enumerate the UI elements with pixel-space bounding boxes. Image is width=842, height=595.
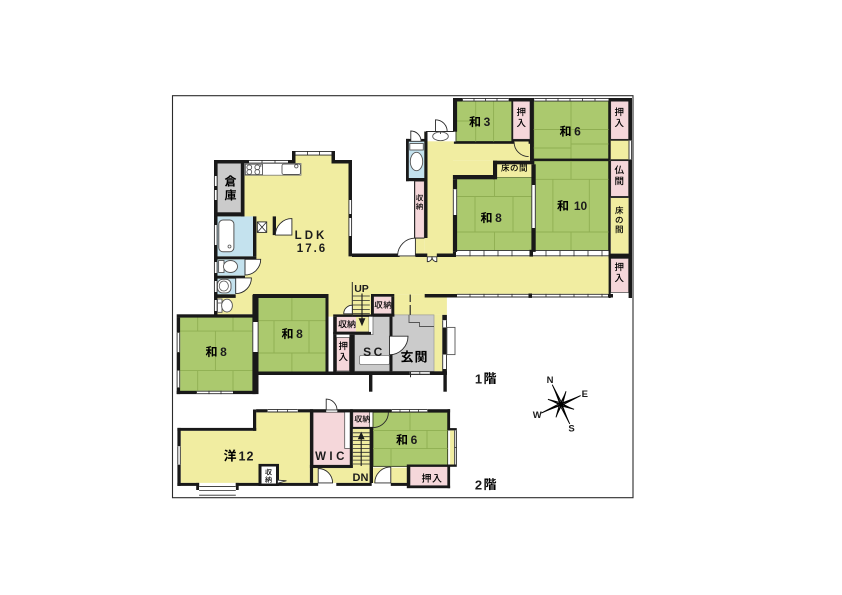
svg-text:WIC: WIC — [315, 451, 348, 463]
svg-text:N: N — [547, 375, 554, 386]
svg-text:12: 12 — [239, 450, 255, 464]
svg-text:SC: SC — [363, 345, 385, 359]
svg-text:LDK: LDK — [295, 230, 328, 242]
svg-text:UP: UP — [354, 283, 369, 295]
svg-text:3: 3 — [484, 115, 491, 129]
svg-text:W: W — [533, 410, 542, 421]
svg-text:17.6: 17.6 — [297, 243, 327, 255]
svg-text:8: 8 — [220, 345, 227, 359]
svg-text:S: S — [568, 423, 574, 434]
svg-text:10: 10 — [574, 199, 588, 213]
svg-text:E: E — [582, 389, 588, 400]
svg-text:6: 6 — [574, 125, 581, 139]
svg-text:8: 8 — [495, 211, 502, 225]
svg-text:8: 8 — [296, 327, 303, 341]
svg-text:1: 1 — [475, 372, 482, 387]
svg-text:2: 2 — [475, 478, 482, 493]
svg-text:DN: DN — [353, 472, 369, 484]
svg-text:6: 6 — [411, 433, 418, 447]
